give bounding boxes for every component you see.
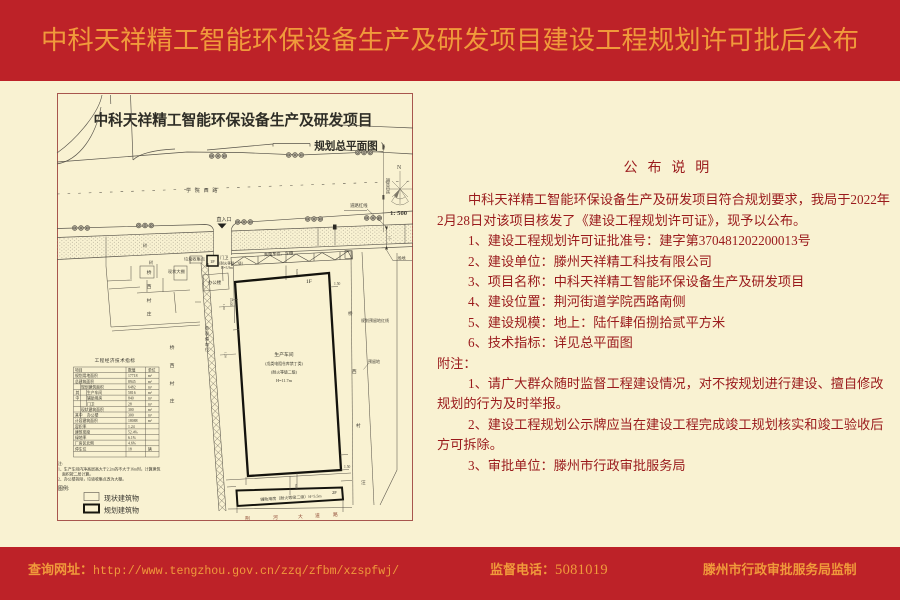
- svg-text:1.50: 1.50: [224, 352, 228, 358]
- svg-text:参观停车位: 参观停车位: [204, 325, 210, 353]
- svg-text:1: 500: 1: 500: [390, 210, 408, 217]
- svg-text:15: 15: [388, 236, 392, 240]
- svg-text:西: 西: [352, 369, 357, 375]
- svg-text:汪: 汪: [361, 479, 366, 486]
- svg-text:5816: 5816: [128, 391, 136, 395]
- svg-text:现状大棚: 现状大棚: [168, 268, 185, 275]
- svg-text:其: 其: [76, 391, 80, 395]
- svg-text:河: 河: [273, 514, 278, 521]
- svg-text:荆: 荆: [245, 515, 250, 522]
- svg-text:树: 树: [149, 259, 153, 265]
- svg-text:桥西村庄: 桥西村庄: [169, 344, 174, 416]
- svg-text:18088: 18088: [128, 419, 138, 423]
- svg-text:17718: 17718: [128, 374, 138, 378]
- svg-text:辅助用房: 辅助用房: [87, 396, 102, 401]
- svg-text:大: 大: [298, 513, 303, 520]
- svg-text:(耐火等级二级): (耐火等级二级): [271, 370, 298, 375]
- svg-text:桥西村庄: 桥西村庄: [146, 269, 151, 325]
- svg-text:单位: 单位: [148, 368, 156, 373]
- svg-text:6.1%: 6.1%: [128, 436, 137, 440]
- svg-text:8945: 8945: [128, 380, 136, 384]
- svg-text:直入口: 直入口: [217, 216, 232, 223]
- svg-text:52.4%: 52.4%: [128, 431, 139, 435]
- svg-text:1.50: 1.50: [334, 282, 340, 286]
- svg-text:现状建筑物: 现状建筑物: [104, 494, 139, 503]
- svg-text:m²: m²: [148, 397, 153, 401]
- svg-text:办公楼: 办公楼: [208, 279, 222, 286]
- svg-text:m²: m²: [148, 402, 153, 406]
- svg-text:树: 树: [143, 242, 147, 248]
- svg-text:规划总平面图: 规划总平面图: [314, 140, 378, 153]
- svg-text:m²: m²: [148, 380, 153, 384]
- svg-text:28: 28: [128, 402, 132, 406]
- svg-text:N: N: [397, 165, 402, 171]
- svg-text:村: 村: [356, 422, 361, 428]
- svg-text:现状建筑面积: 现状建筑面积: [81, 407, 104, 412]
- svg-text:道路红线: 道路红线: [350, 202, 368, 209]
- svg-text:300: 300: [128, 408, 134, 412]
- svg-text:m²: m²: [148, 374, 153, 378]
- svg-text:(戊类电阻仓库禁丁类): (戊类电阻仓库禁丁类): [265, 361, 303, 366]
- svg-text:办公楼: 办公楼: [87, 413, 99, 418]
- svg-text:厂房区北侧: 厂房区北侧: [75, 441, 94, 446]
- svg-text:路: 路: [333, 511, 338, 518]
- svg-text:15.00: 15.00: [229, 298, 233, 306]
- svg-text:学院西路: 学院西路: [186, 187, 221, 194]
- svg-text:1.50: 1.50: [344, 465, 350, 469]
- svg-text:生产车间: 生产车间: [274, 351, 293, 358]
- svg-text:规划红线: 规划红线: [386, 178, 392, 194]
- svg-text:18: 18: [128, 447, 132, 451]
- svg-text:m²: m²: [148, 408, 153, 412]
- svg-text:桥: 桥: [348, 310, 353, 317]
- svg-text:工程经济技术指标: 工程经济技术指标: [95, 357, 136, 364]
- svg-text:面积按二层计算。: 面积按二层计算。: [62, 472, 93, 477]
- svg-text:m²: m²: [148, 419, 153, 423]
- svg-text:停车位: 停车位: [75, 446, 87, 451]
- svg-text:充电车位，车棚: 充电车位，车棚: [264, 249, 294, 258]
- svg-text:1.50: 1.50: [222, 304, 226, 310]
- svg-text:绿地率: 绿地率: [75, 435, 87, 440]
- svg-text:门卫: 门卫: [87, 401, 95, 406]
- svg-text:辆: 辆: [148, 446, 152, 451]
- svg-text:中: 中: [76, 396, 80, 401]
- svg-text:840: 840: [128, 397, 134, 401]
- svg-text:6.00: 6.00: [294, 484, 298, 490]
- svg-text:项目: 项目: [75, 368, 83, 373]
- svg-text:规划建筑面积: 规划建筑面积: [81, 385, 104, 390]
- svg-text:规划建筑物: 规划建筑物: [104, 506, 139, 515]
- svg-text:预留地: 预留地: [368, 358, 380, 364]
- svg-text:1.24: 1.24: [128, 425, 135, 429]
- svg-text:场地: 场地: [398, 255, 406, 261]
- svg-text:6482: 6482: [128, 386, 136, 390]
- svg-text:m²: m²: [148, 414, 153, 418]
- svg-text:1F: 1F: [306, 279, 312, 285]
- svg-text:容积率: 容积率: [75, 424, 87, 429]
- svg-text:垃圾收集点: 垃圾收集点: [184, 256, 205, 263]
- svg-text:总建筑面积: 总建筑面积: [75, 379, 94, 384]
- svg-text:道: 道: [315, 512, 320, 519]
- svg-text:注:: 注:: [58, 461, 63, 466]
- svg-text:6.00: 6.00: [295, 269, 299, 275]
- svg-text:1、生产车间内净高层高大于2.2m的不大于16m时，计算建筑: 1、生产车间内净高层高大于2.2m的不大于16m时，计算建筑: [58, 467, 160, 472]
- svg-text:生产车间: 生产车间: [87, 390, 102, 395]
- svg-text:其中: 其中: [75, 413, 83, 418]
- svg-text:规划用地面积: 规划用地面积: [75, 373, 98, 378]
- svg-text:H=3.9m: H=3.9m: [221, 266, 233, 270]
- svg-text:建筑密度: 建筑密度: [75, 430, 90, 435]
- svg-text:300: 300: [128, 414, 134, 418]
- svg-text:计容建筑面积: 计容建筑面积: [75, 418, 98, 423]
- svg-text:H=11.7m: H=11.7m: [276, 378, 293, 383]
- svg-text:中科天祥精工智能环保设备生产及研发项目: 中科天祥精工智能环保设备生产及研发项目: [93, 111, 372, 129]
- svg-text:门卫: 门卫: [220, 254, 228, 261]
- svg-text:规划预留地红线: 规划预留地红线: [361, 317, 389, 323]
- svg-text:m²: m²: [148, 391, 153, 395]
- svg-text:数值: 数值: [128, 368, 136, 373]
- svg-text:2、办公楼拆除，垃圾收集点改为大棚。: 2、办公楼拆除，垃圾收集点改为大棚。: [58, 477, 126, 482]
- svg-text:4.6%: 4.6%: [128, 442, 137, 446]
- svg-text:1F: 1F: [210, 259, 215, 264]
- svg-text:图例:: 图例:: [58, 485, 69, 492]
- svg-text:m²: m²: [148, 386, 153, 390]
- svg-text:2F: 2F: [332, 490, 337, 495]
